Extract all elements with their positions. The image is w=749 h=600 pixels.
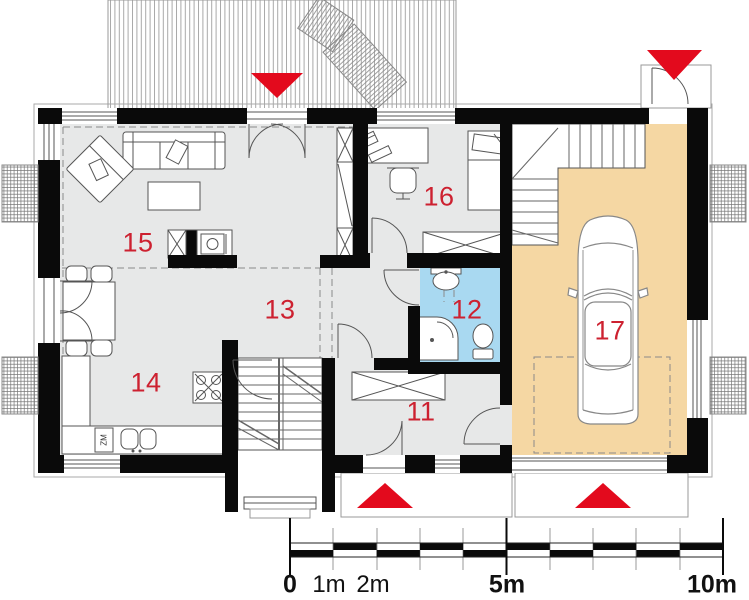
toilet <box>473 324 493 359</box>
fireplace <box>168 230 232 258</box>
light-well <box>2 165 38 222</box>
staircase <box>238 358 322 450</box>
window <box>377 108 455 124</box>
garden-door-opening <box>38 278 60 343</box>
chair <box>91 340 112 356</box>
front-porch <box>341 473 512 517</box>
car <box>568 216 648 424</box>
coffee-table <box>148 182 200 210</box>
tall-cabinet <box>337 128 353 262</box>
light-well <box>710 165 746 222</box>
terrace-door-opening <box>247 108 307 124</box>
window <box>687 320 708 418</box>
chair <box>66 266 87 282</box>
window <box>38 124 60 160</box>
shower <box>414 317 458 360</box>
light-well <box>2 357 38 414</box>
chair <box>91 266 112 282</box>
floor-plan: 11 12 13 14 15 16 17 ZM 0 1m 2m 5m 10m <box>0 0 749 600</box>
window <box>62 108 117 124</box>
chair <box>66 340 87 356</box>
scale-bar <box>290 518 723 575</box>
washbasin <box>431 268 461 290</box>
terrace <box>108 0 456 112</box>
front-door <box>244 497 316 518</box>
hob <box>193 372 224 403</box>
sofa <box>123 132 225 169</box>
kitchen-counter-left <box>62 356 90 426</box>
window <box>64 455 120 473</box>
hall-wardrobe <box>352 372 445 400</box>
back-door-threshold <box>363 455 405 473</box>
light-well <box>710 357 746 414</box>
dishwasher <box>95 428 113 452</box>
window <box>435 455 460 473</box>
garage-door <box>512 455 667 473</box>
floor-plan-drawing <box>0 0 749 600</box>
